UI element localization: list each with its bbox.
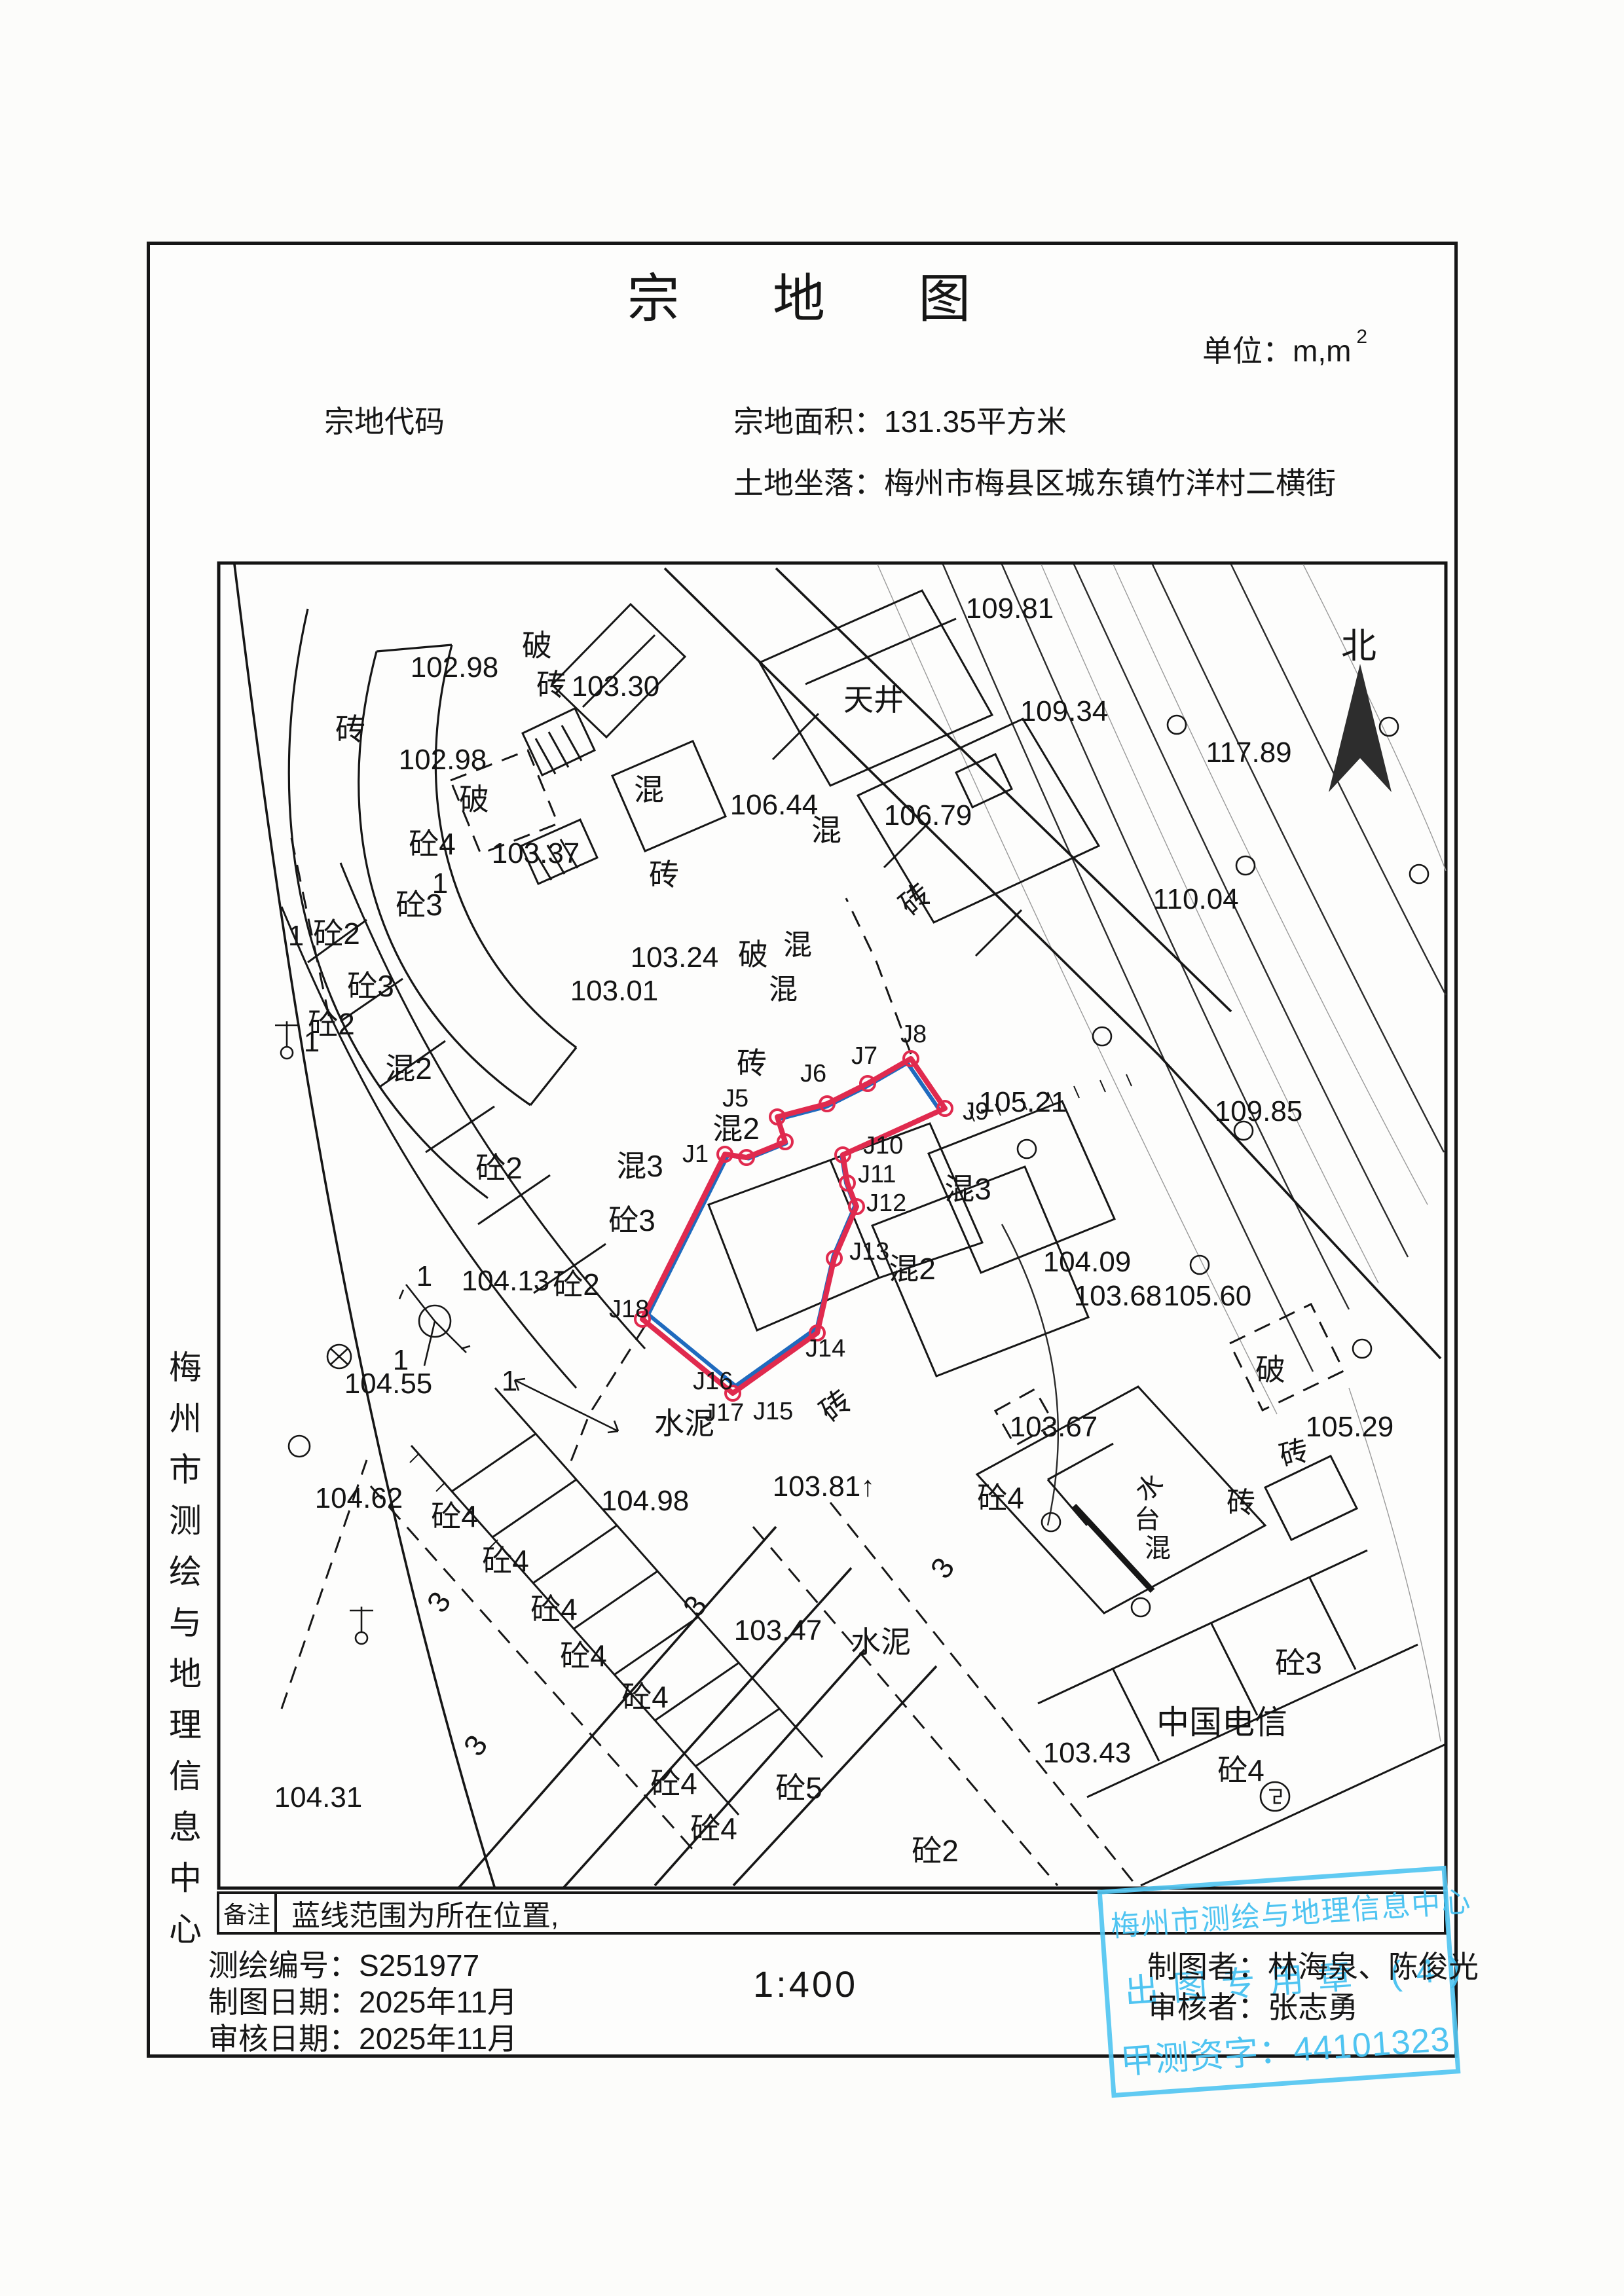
map-label: 混	[634, 773, 664, 807]
parcel-point-label-J11: J11	[858, 1161, 896, 1188]
map-label: 混	[1145, 1534, 1171, 1563]
map-label: 砖	[649, 858, 679, 892]
map-label: 103.24	[631, 941, 719, 974]
map-label: 117.89	[1206, 737, 1291, 769]
manhole-icon	[327, 1345, 351, 1368]
map-label: 102.98	[411, 651, 499, 683]
map-label: 1	[288, 920, 304, 952]
parcel-point-label-J9: J9	[963, 1098, 989, 1125]
map-label: 1	[502, 1365, 517, 1397]
parcel-point-label-J12: J12	[866, 1190, 906, 1217]
map-label: 破	[738, 938, 768, 972]
parcel-location: 土地坐落：梅州市梅县区城东镇竹洋村二横街	[733, 460, 1336, 503]
map-label: 砼2	[475, 1151, 523, 1185]
map-label: 砼4	[621, 1680, 669, 1714]
map-label: 砼4	[977, 1481, 1024, 1515]
map-label: 1	[304, 1026, 320, 1058]
review-date: 审核日期：2025年11月	[208, 2015, 517, 2058]
map-label: 103.01	[570, 975, 659, 1007]
map-label: 3	[420, 1585, 457, 1618]
map-label: 1	[416, 1260, 432, 1292]
map-label: 105.60	[1164, 1280, 1252, 1312]
parcel-code-label: 宗地代码	[324, 398, 445, 441]
north-arrow-icon	[1324, 660, 1396, 797]
map-label: 混2	[712, 1112, 760, 1146]
map-label: 砖	[893, 877, 938, 922]
map-label: 砼3	[1275, 1646, 1322, 1680]
map-label: 混3	[616, 1149, 663, 1183]
map-label: 砼4	[482, 1544, 529, 1578]
map-label: 109.81	[966, 592, 1054, 625]
map-label: 砼2	[553, 1267, 600, 1302]
parcel-point-label-J16: J16	[693, 1368, 733, 1395]
map-label: 109.34	[1020, 695, 1109, 727]
map-label: 砼3	[608, 1203, 655, 1237]
parcel-point-label-J13: J13	[849, 1238, 889, 1266]
map-label: 103.81↑	[773, 1470, 876, 1503]
parcel-point-label-J17: J17	[704, 1399, 744, 1427]
pole-icon	[350, 1607, 373, 1644]
unit-superscript: 2	[1356, 326, 1367, 348]
survey-station-icon	[399, 1285, 470, 1366]
map-label: 103.67	[1010, 1411, 1098, 1443]
map-label: 105.29	[1306, 1411, 1394, 1443]
map-label: 104.55	[344, 1368, 433, 1400]
page-title: 宗 地 图	[627, 257, 1010, 333]
map-label: 103.43	[1043, 1737, 1132, 1769]
producer-org-vertical: 梅州市测绘与地理信息中心	[159, 1350, 206, 1939]
map-label: 砼4	[409, 827, 456, 861]
map-label: 104.31	[274, 1781, 363, 1813]
map-label: 混3	[944, 1172, 991, 1206]
stamp-org: 梅州市测绘与地理信息中心	[1109, 1880, 1439, 1945]
map-label: 3	[456, 1728, 494, 1762]
map-label: 砖	[335, 712, 365, 746]
map-label: 106.44	[730, 789, 819, 821]
map-label: 砼3	[347, 969, 394, 1003]
map-label: 水泥	[851, 1625, 911, 1659]
map-label: 破	[1255, 1353, 1285, 1387]
map-label: 109.85	[1215, 1095, 1303, 1127]
pole-icon	[275, 1021, 299, 1059]
map-label: 103.30	[572, 670, 660, 702]
remark-label: 备注	[219, 1894, 277, 1932]
map-label: 中国电信	[1156, 1704, 1287, 1741]
map-label: 砼4	[1217, 1753, 1264, 1787]
parcel-point-label-J18: J18	[609, 1296, 649, 1323]
parcel-point-label-J15: J15	[753, 1398, 793, 1425]
map-label: 3	[923, 1551, 961, 1584]
parcel-boundary	[635, 1051, 952, 1400]
map-label: 砖	[536, 668, 566, 702]
map-label: 混	[811, 813, 841, 847]
map-label: 混	[769, 974, 798, 1006]
north-label: 北	[1341, 617, 1376, 668]
parcel-point-label-J6: J6	[800, 1060, 826, 1087]
parcel-point-label-J8: J8	[900, 1021, 927, 1048]
page: { "page": { "title": "宗 地 图", "unit_pref…	[0, 0, 1624, 2296]
map-label: 砼4	[530, 1592, 578, 1626]
map-label: 110.04	[1153, 883, 1238, 915]
parcel-point-label-J10: J10	[863, 1132, 903, 1159]
parcel-area: 宗地面积：131.35平方米	[733, 398, 1067, 441]
remark-text: 蓝线范围为所在位置,	[277, 1894, 559, 1932]
unit-label: 单位：m,m2	[1202, 326, 1367, 371]
map-label: 天井	[843, 683, 904, 717]
map-label: 砖	[1227, 1487, 1255, 1519]
map-label: 砼4	[650, 1766, 697, 1800]
map-label: 104.98	[601, 1485, 690, 1517]
parcel-point-label-J5: J5	[722, 1085, 748, 1112]
map-label: 水	[1130, 1468, 1169, 1506]
map-label: 混2	[889, 1252, 936, 1286]
map-label: 砼3	[396, 888, 443, 922]
map-label: 混2	[385, 1051, 432, 1085]
telecom-symbol-icon	[1261, 1782, 1289, 1811]
map-label: 106.79	[884, 799, 972, 831]
double-arrow	[515, 1379, 618, 1432]
map-label: 103.37	[492, 837, 580, 869]
reviewer: 审核者：张志勇	[1147, 1984, 1358, 2027]
map-label: 103.68	[1074, 1280, 1162, 1312]
map-label: 混	[783, 929, 812, 961]
map-label: 104.13	[462, 1265, 550, 1297]
map-canvas: 砖102.98破砖103.30天井109.81109.34117.89110.0…	[217, 561, 1448, 1890]
map-label: 104.62	[315, 1482, 403, 1514]
map-scale: 1:400	[753, 1963, 858, 2005]
map-label: 105.21	[979, 1086, 1067, 1118]
map-label: 砼4	[560, 1639, 607, 1673]
map-label: 破	[459, 782, 489, 816]
parcel-point-label-J7: J7	[851, 1042, 877, 1070]
map-label: 砼4	[690, 1812, 737, 1846]
map-label: 砖	[737, 1046, 767, 1080]
map-label: 砼5	[775, 1771, 822, 1805]
map-label: 台	[1134, 1505, 1160, 1534]
drafter: 制图者：林海泉、陈俊光	[1147, 1943, 1479, 1986]
map-label: 102.98	[399, 744, 487, 776]
map-label: 破	[522, 629, 552, 663]
map-label: 砼4	[431, 1499, 478, 1533]
map-label: 砖	[813, 1383, 858, 1429]
map-label: 砼2	[313, 917, 360, 951]
parcel-point-label-J14: J14	[805, 1335, 845, 1362]
map-label: 104.09	[1043, 1246, 1132, 1278]
map-label: 砼2	[912, 1834, 959, 1868]
map-label: 103.47	[734, 1614, 822, 1647]
parcel-point-label-J1: J1	[682, 1140, 709, 1168]
